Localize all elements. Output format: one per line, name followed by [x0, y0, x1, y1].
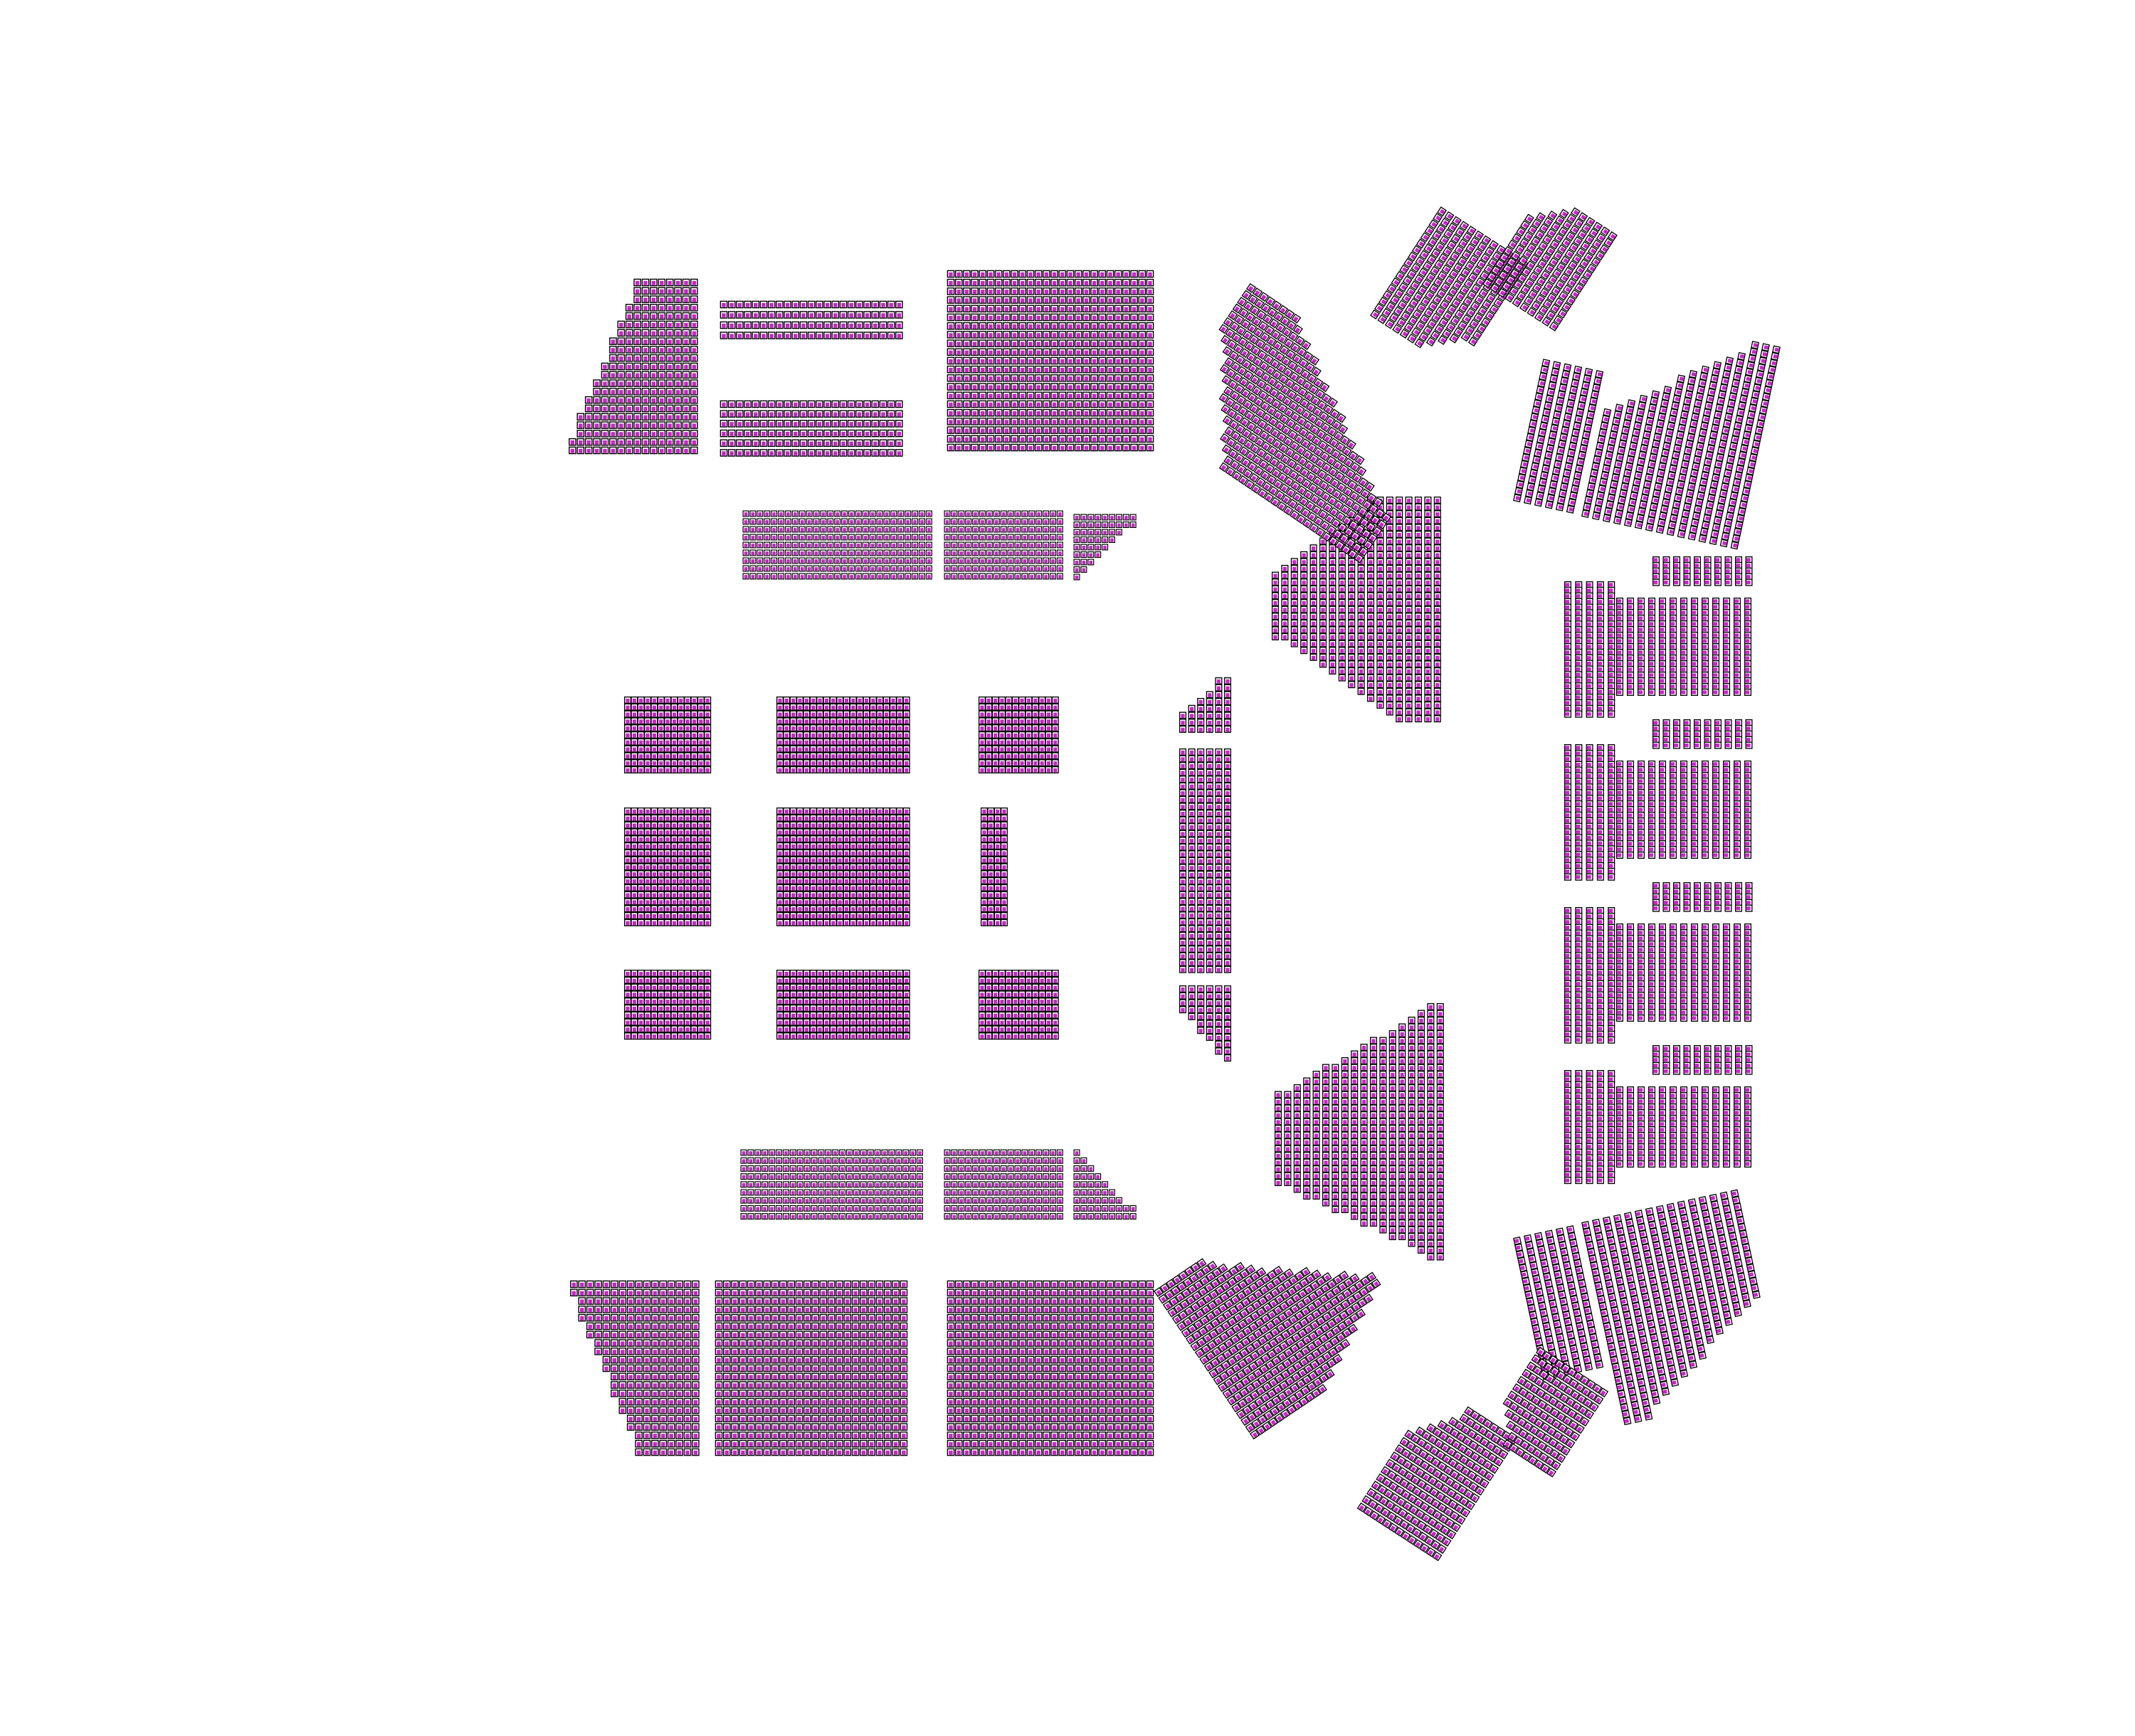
seat[interactable]: [651, 1012, 658, 1018]
seat[interactable]: [1225, 776, 1231, 783]
seat[interactable]: [595, 1315, 601, 1321]
seat[interactable]: [1001, 864, 1008, 870]
seat[interactable]: [1057, 1158, 1063, 1163]
seat[interactable]: [1032, 725, 1038, 731]
seat[interactable]: [966, 1182, 971, 1187]
seat[interactable]: [826, 1165, 831, 1171]
seat[interactable]: [944, 534, 950, 540]
seat[interactable]: [850, 697, 856, 704]
seat[interactable]: [650, 405, 657, 411]
seat[interactable]: [837, 977, 843, 983]
seat[interactable]: [870, 566, 875, 571]
seat[interactable]: [824, 332, 831, 339]
seat[interactable]: [912, 566, 918, 571]
seat[interactable]: [987, 1390, 993, 1397]
seat[interactable]: [971, 427, 978, 433]
seat[interactable]: [658, 753, 664, 759]
seat[interactable]: [882, 1197, 887, 1203]
seat[interactable]: [804, 1441, 811, 1447]
seat[interactable]: [1019, 1026, 1026, 1032]
seat[interactable]: [1115, 323, 1122, 329]
seat[interactable]: [685, 857, 691, 863]
seat[interactable]: [1099, 1424, 1105, 1430]
seat[interactable]: [1012, 753, 1018, 759]
seat[interactable]: [724, 1315, 730, 1321]
seat[interactable]: [665, 1033, 671, 1039]
seat[interactable]: [964, 1340, 970, 1346]
seat[interactable]: [739, 1399, 746, 1405]
seat[interactable]: [628, 1407, 634, 1413]
seat[interactable]: [1083, 1340, 1090, 1346]
seat[interactable]: [790, 864, 796, 870]
seat[interactable]: [769, 1174, 775, 1180]
seat[interactable]: [1131, 427, 1137, 433]
seat[interactable]: [668, 1348, 675, 1355]
seat[interactable]: [892, 1357, 899, 1363]
seat[interactable]: [987, 305, 993, 312]
seat[interactable]: [579, 1281, 585, 1287]
seat[interactable]: [850, 718, 856, 724]
seat[interactable]: [959, 1174, 964, 1180]
seat[interactable]: [912, 550, 918, 556]
seat[interactable]: [810, 697, 816, 704]
seat[interactable]: [1115, 1306, 1122, 1313]
seat[interactable]: [868, 1289, 875, 1296]
seat[interactable]: [691, 430, 697, 437]
seat[interactable]: [947, 1399, 954, 1405]
seat[interactable]: [863, 1033, 870, 1039]
seat[interactable]: [760, 312, 766, 318]
seat[interactable]: [625, 864, 631, 870]
seat[interactable]: [1091, 1441, 1097, 1447]
seat[interactable]: [692, 1315, 699, 1321]
seat[interactable]: [1051, 1315, 1058, 1321]
seat[interactable]: [877, 906, 883, 912]
seat[interactable]: [594, 430, 600, 437]
seat[interactable]: [1051, 1281, 1058, 1287]
seat[interactable]: [820, 1441, 826, 1447]
seat[interactable]: [996, 1281, 1002, 1287]
seat[interactable]: [678, 1026, 684, 1032]
seat[interactable]: [1036, 511, 1042, 517]
seat[interactable]: [638, 815, 644, 821]
seat[interactable]: [1107, 418, 1113, 425]
seat[interactable]: [671, 725, 678, 731]
seat[interactable]: [870, 871, 877, 877]
seat[interactable]: [691, 871, 697, 877]
seat[interactable]: [1035, 435, 1042, 442]
seat[interactable]: [864, 312, 870, 318]
seat[interactable]: [877, 573, 882, 579]
seat[interactable]: [790, 1174, 796, 1180]
seat[interactable]: [750, 550, 756, 556]
seat[interactable]: [926, 519, 932, 524]
seat[interactable]: [818, 1182, 824, 1187]
seat[interactable]: [625, 884, 631, 891]
seat[interactable]: [803, 850, 810, 856]
seat[interactable]: [900, 1441, 907, 1447]
seat[interactable]: [1115, 392, 1122, 398]
seat[interactable]: [818, 1205, 824, 1211]
seat[interactable]: [956, 314, 962, 320]
seat[interactable]: [900, 1348, 907, 1355]
seat[interactable]: [890, 739, 897, 745]
seat[interactable]: [979, 314, 986, 320]
seat[interactable]: [1052, 1005, 1058, 1012]
seat[interactable]: [836, 1390, 843, 1397]
seat[interactable]: [863, 913, 870, 919]
seat[interactable]: [645, 1005, 651, 1012]
seat[interactable]: [796, 1348, 802, 1355]
seat[interactable]: [810, 850, 816, 856]
seat[interactable]: [1099, 1373, 1105, 1380]
seat[interactable]: [642, 388, 648, 395]
seat[interactable]: [698, 1019, 705, 1025]
seat[interactable]: [756, 1407, 762, 1413]
seat[interactable]: [784, 906, 790, 912]
seat[interactable]: [857, 871, 863, 877]
seat[interactable]: [1083, 401, 1090, 407]
seat[interactable]: [1131, 340, 1137, 346]
seat[interactable]: [986, 1033, 992, 1039]
seat[interactable]: [1052, 977, 1058, 983]
seat[interactable]: [1139, 1331, 1145, 1338]
seat[interactable]: [1043, 1281, 1050, 1287]
seat[interactable]: [692, 1306, 699, 1313]
seat[interactable]: [804, 1197, 810, 1203]
seat[interactable]: [964, 1348, 970, 1355]
seat[interactable]: [835, 526, 840, 532]
seat[interactable]: [1088, 1197, 1094, 1203]
seat[interactable]: [1216, 726, 1222, 733]
seat[interactable]: [651, 725, 658, 731]
seat[interactable]: [897, 1012, 903, 1018]
seat[interactable]: [844, 1306, 850, 1313]
seat[interactable]: [634, 371, 640, 378]
seat[interactable]: [988, 843, 994, 850]
seat[interactable]: [1099, 1407, 1105, 1413]
seat[interactable]: [1036, 534, 1042, 540]
seat[interactable]: [1039, 739, 1045, 745]
seat[interactable]: [671, 1019, 678, 1025]
seat[interactable]: [1115, 383, 1122, 390]
seat[interactable]: [1003, 1323, 1010, 1329]
seat[interactable]: [586, 430, 592, 437]
seat[interactable]: [1035, 1441, 1042, 1447]
seat[interactable]: [744, 401, 751, 407]
seat[interactable]: [796, 1390, 802, 1397]
seat[interactable]: [980, 1205, 986, 1211]
seat[interactable]: [784, 312, 791, 318]
seat[interactable]: [1019, 767, 1026, 773]
seat[interactable]: [1206, 763, 1213, 769]
seat[interactable]: [720, 430, 727, 437]
seat[interactable]: [837, 891, 843, 898]
seat[interactable]: [1051, 444, 1058, 450]
seat[interactable]: [1131, 323, 1137, 329]
seat[interactable]: [634, 305, 640, 311]
seat[interactable]: [1019, 991, 1026, 997]
seat[interactable]: [1198, 810, 1204, 817]
seat[interactable]: [691, 296, 697, 302]
seat[interactable]: [750, 566, 756, 571]
seat[interactable]: [618, 355, 624, 361]
seat[interactable]: [692, 1424, 699, 1430]
seat[interactable]: [1107, 1449, 1113, 1455]
seat[interactable]: [1022, 542, 1028, 548]
seat[interactable]: [1011, 1340, 1018, 1346]
seat[interactable]: [996, 1315, 1002, 1321]
seat[interactable]: [1102, 1182, 1108, 1187]
seat[interactable]: [979, 1390, 986, 1397]
seat[interactable]: [835, 534, 840, 540]
seat[interactable]: [1091, 314, 1097, 320]
seat[interactable]: [1206, 756, 1213, 762]
seat[interactable]: [823, 864, 830, 870]
seat[interactable]: [638, 1005, 644, 1012]
seat[interactable]: [971, 297, 978, 303]
seat[interactable]: [1081, 544, 1087, 550]
seat[interactable]: [1011, 1315, 1018, 1321]
seat[interactable]: [863, 991, 870, 997]
seat[interactable]: [1091, 323, 1097, 329]
seat[interactable]: [691, 329, 697, 336]
seat[interactable]: [750, 558, 756, 563]
seat[interactable]: [1180, 926, 1186, 932]
seat[interactable]: [863, 884, 870, 891]
seat[interactable]: [691, 808, 697, 815]
seat[interactable]: [1139, 1432, 1145, 1439]
seat[interactable]: [897, 906, 903, 912]
seat[interactable]: [1008, 1214, 1013, 1219]
seat[interactable]: [853, 1331, 859, 1338]
seat[interactable]: [973, 1182, 979, 1187]
seat[interactable]: [817, 878, 823, 884]
seat[interactable]: [853, 1390, 859, 1397]
section-floor-r2-c2[interactable]: [777, 808, 910, 926]
seat[interactable]: [1059, 340, 1065, 346]
seat[interactable]: [800, 450, 806, 456]
seat[interactable]: [1067, 340, 1073, 346]
seat[interactable]: [650, 397, 657, 403]
seat[interactable]: [611, 1382, 618, 1388]
seat[interactable]: [1026, 732, 1032, 739]
seat[interactable]: [803, 1005, 810, 1012]
seat[interactable]: [1188, 872, 1195, 878]
seat[interactable]: [658, 338, 665, 344]
seat[interactable]: [631, 843, 638, 850]
seat[interactable]: [1083, 366, 1090, 373]
seat[interactable]: [1022, 511, 1028, 517]
seat[interactable]: [905, 558, 911, 563]
seat[interactable]: [660, 1348, 666, 1355]
seat[interactable]: [947, 1315, 954, 1321]
seat[interactable]: [1050, 1158, 1056, 1163]
seat[interactable]: [1131, 1365, 1137, 1371]
seat[interactable]: [843, 718, 850, 724]
seat[interactable]: [1050, 526, 1056, 532]
seat[interactable]: [884, 511, 890, 517]
seat[interactable]: [880, 401, 886, 407]
seat[interactable]: [1022, 1174, 1028, 1180]
seat[interactable]: [910, 1174, 916, 1180]
seat[interactable]: [792, 332, 798, 339]
seat[interactable]: [643, 1373, 650, 1380]
seat[interactable]: [671, 884, 678, 891]
seat[interactable]: [1198, 756, 1204, 762]
seat[interactable]: [864, 301, 870, 307]
seat[interactable]: [788, 1315, 794, 1321]
seat[interactable]: [658, 906, 664, 912]
seat[interactable]: [665, 739, 671, 745]
seat[interactable]: [903, 977, 910, 983]
seat[interactable]: [956, 1323, 962, 1329]
seat[interactable]: [682, 338, 689, 344]
seat[interactable]: [863, 697, 870, 704]
seat[interactable]: [748, 1382, 754, 1388]
seat[interactable]: [823, 998, 830, 1005]
seat[interactable]: [668, 1390, 675, 1397]
seat[interactable]: [835, 558, 840, 563]
seat[interactable]: [1088, 559, 1094, 565]
seat[interactable]: [724, 1449, 730, 1455]
seat[interactable]: [1091, 1390, 1097, 1397]
seat[interactable]: [872, 401, 878, 407]
seat[interactable]: [808, 401, 815, 407]
seat[interactable]: [883, 1026, 890, 1032]
seat[interactable]: [1091, 1407, 1097, 1413]
seat[interactable]: [1225, 919, 1231, 925]
seat[interactable]: [876, 1441, 882, 1447]
seat[interactable]: [1003, 1306, 1010, 1313]
seat[interactable]: [956, 1289, 962, 1296]
seat[interactable]: [1036, 1205, 1042, 1211]
seat[interactable]: [715, 1281, 722, 1287]
seat[interactable]: [1074, 1197, 1080, 1203]
seat[interactable]: [1051, 1399, 1058, 1405]
seat[interactable]: [645, 746, 651, 752]
seat[interactable]: [777, 913, 784, 919]
seat[interactable]: [1043, 573, 1049, 579]
seat[interactable]: [651, 970, 658, 977]
seat[interactable]: [769, 1158, 775, 1163]
seat[interactable]: [1051, 1390, 1058, 1397]
seat[interactable]: [1059, 1340, 1065, 1346]
seat[interactable]: [1139, 401, 1145, 407]
seat[interactable]: [756, 1441, 762, 1447]
seat[interactable]: [857, 913, 863, 919]
seat[interactable]: [636, 1365, 642, 1371]
seat[interactable]: [1022, 1205, 1028, 1211]
seat[interactable]: [1115, 1399, 1122, 1405]
seat[interactable]: [1083, 323, 1090, 329]
seat[interactable]: [1083, 1373, 1090, 1380]
seat[interactable]: [885, 1449, 891, 1455]
seat[interactable]: [1011, 270, 1018, 277]
seat[interactable]: [685, 884, 691, 891]
seat[interactable]: [1011, 410, 1018, 416]
seat[interactable]: [951, 1158, 957, 1163]
seat[interactable]: [823, 697, 830, 704]
seat[interactable]: [1225, 783, 1231, 789]
seat[interactable]: [979, 1289, 986, 1296]
seat[interactable]: [810, 977, 816, 983]
seat[interactable]: [830, 970, 836, 977]
seat[interactable]: [1057, 1182, 1063, 1187]
seat[interactable]: [1043, 1449, 1050, 1455]
seat[interactable]: [1045, 998, 1052, 1005]
seat[interactable]: [658, 704, 664, 710]
seat[interactable]: [1115, 305, 1122, 312]
seat[interactable]: [870, 857, 877, 863]
seat[interactable]: [959, 1197, 964, 1203]
seat[interactable]: [1146, 314, 1153, 320]
seat[interactable]: [987, 288, 993, 295]
seat[interactable]: [720, 450, 727, 456]
seat[interactable]: [987, 1315, 993, 1321]
seat[interactable]: [1019, 410, 1026, 416]
seat[interactable]: [601, 405, 608, 411]
seat[interactable]: [685, 871, 691, 877]
seat[interactable]: [877, 843, 883, 850]
seat[interactable]: [678, 711, 684, 717]
seat[interactable]: [643, 1432, 650, 1439]
seat[interactable]: [1012, 1033, 1018, 1039]
seat[interactable]: [685, 864, 691, 870]
seat[interactable]: [823, 822, 830, 828]
seat[interactable]: [777, 732, 784, 739]
seat[interactable]: [1225, 705, 1231, 711]
seat[interactable]: [720, 301, 727, 307]
seat[interactable]: [987, 297, 993, 303]
seat[interactable]: [973, 534, 979, 540]
seat[interactable]: [691, 718, 697, 724]
seat[interactable]: [1026, 1005, 1032, 1012]
seat[interactable]: [705, 718, 711, 724]
seat[interactable]: [810, 878, 816, 884]
seat[interactable]: [988, 850, 994, 856]
seat[interactable]: [1051, 410, 1058, 416]
seat[interactable]: [1011, 340, 1018, 346]
seat[interactable]: [863, 878, 870, 884]
seat[interactable]: [1091, 401, 1097, 407]
seat[interactable]: [883, 871, 890, 877]
seat[interactable]: [804, 1415, 811, 1422]
seat[interactable]: [634, 313, 640, 319]
seat[interactable]: [843, 878, 850, 884]
seat[interactable]: [1051, 1340, 1058, 1346]
seat[interactable]: [877, 725, 883, 731]
seat[interactable]: [966, 519, 971, 524]
seat[interactable]: [870, 977, 877, 983]
seat[interactable]: [810, 1026, 816, 1032]
seat[interactable]: [691, 843, 697, 850]
seat[interactable]: [678, 746, 684, 752]
seat[interactable]: [951, 526, 957, 532]
seat[interactable]: [732, 1382, 738, 1388]
seat[interactable]: [964, 1357, 970, 1363]
seat[interactable]: [645, 836, 651, 842]
seat[interactable]: [971, 366, 978, 373]
seat[interactable]: [868, 1357, 875, 1363]
seat[interactable]: [698, 836, 705, 842]
seat[interactable]: [890, 970, 897, 977]
seat[interactable]: [896, 301, 902, 307]
seat[interactable]: [796, 1298, 802, 1304]
seat[interactable]: [1180, 824, 1186, 830]
seat[interactable]: [744, 301, 751, 307]
seat[interactable]: [863, 836, 870, 842]
